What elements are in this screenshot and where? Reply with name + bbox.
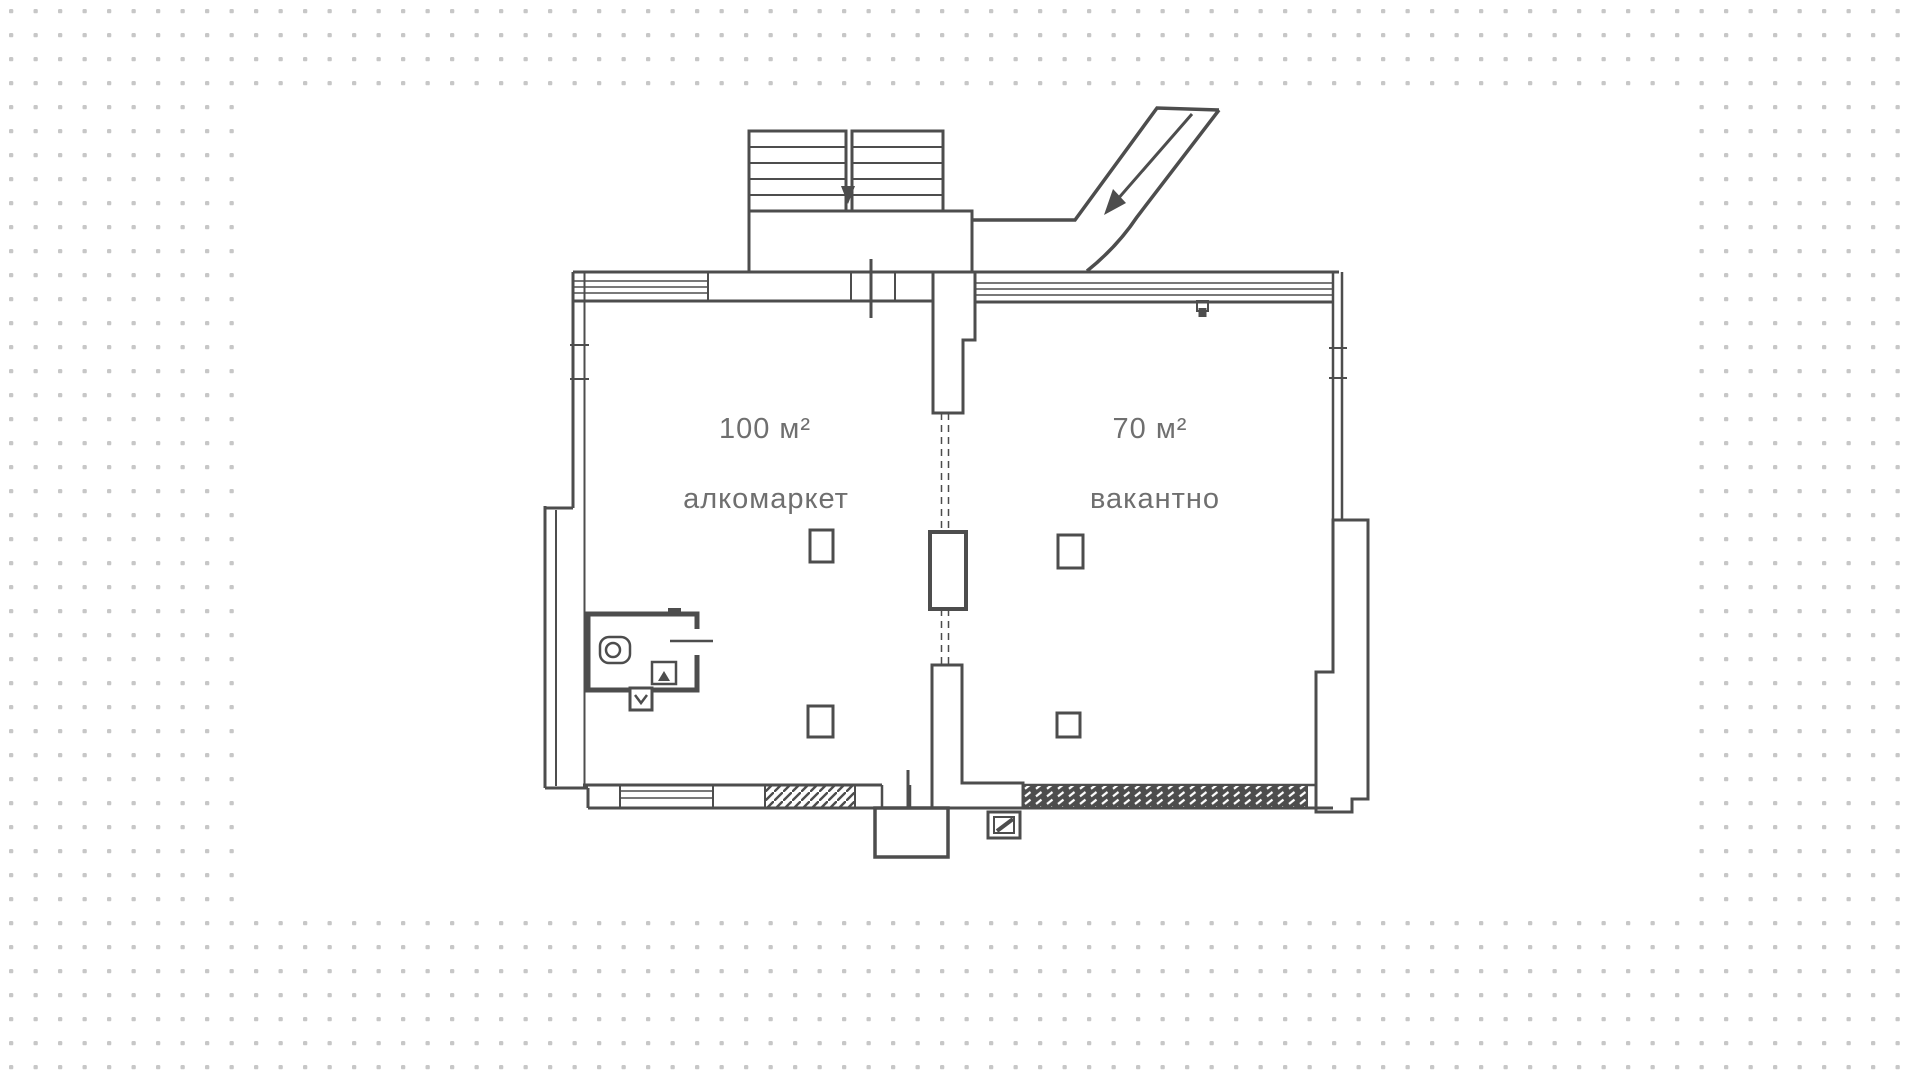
duct-box xyxy=(988,812,1020,838)
unit-left-area-label: 100 м² xyxy=(719,413,811,445)
partition-pillar xyxy=(930,532,966,609)
unit-left-name-label: алкомаркет xyxy=(683,483,849,515)
unit-right-area-label: 70 м² xyxy=(1113,413,1188,445)
floor-plan-canvas: 100 м² алкомаркет 70 м² вакантно xyxy=(0,0,1920,1078)
column xyxy=(1057,713,1080,737)
floor-plan-svg: 100 м² алкомаркет 70 м² вакантно xyxy=(0,0,1920,1078)
wall-notch xyxy=(668,608,681,615)
column xyxy=(810,530,833,562)
floor-box xyxy=(630,688,652,710)
column xyxy=(1058,535,1083,568)
hatched-wall-left xyxy=(765,785,855,808)
unit-right-name-label: вакантно xyxy=(1090,483,1220,515)
hatched-wall-right xyxy=(1023,785,1307,808)
column xyxy=(808,706,833,737)
vestibule xyxy=(875,808,948,857)
